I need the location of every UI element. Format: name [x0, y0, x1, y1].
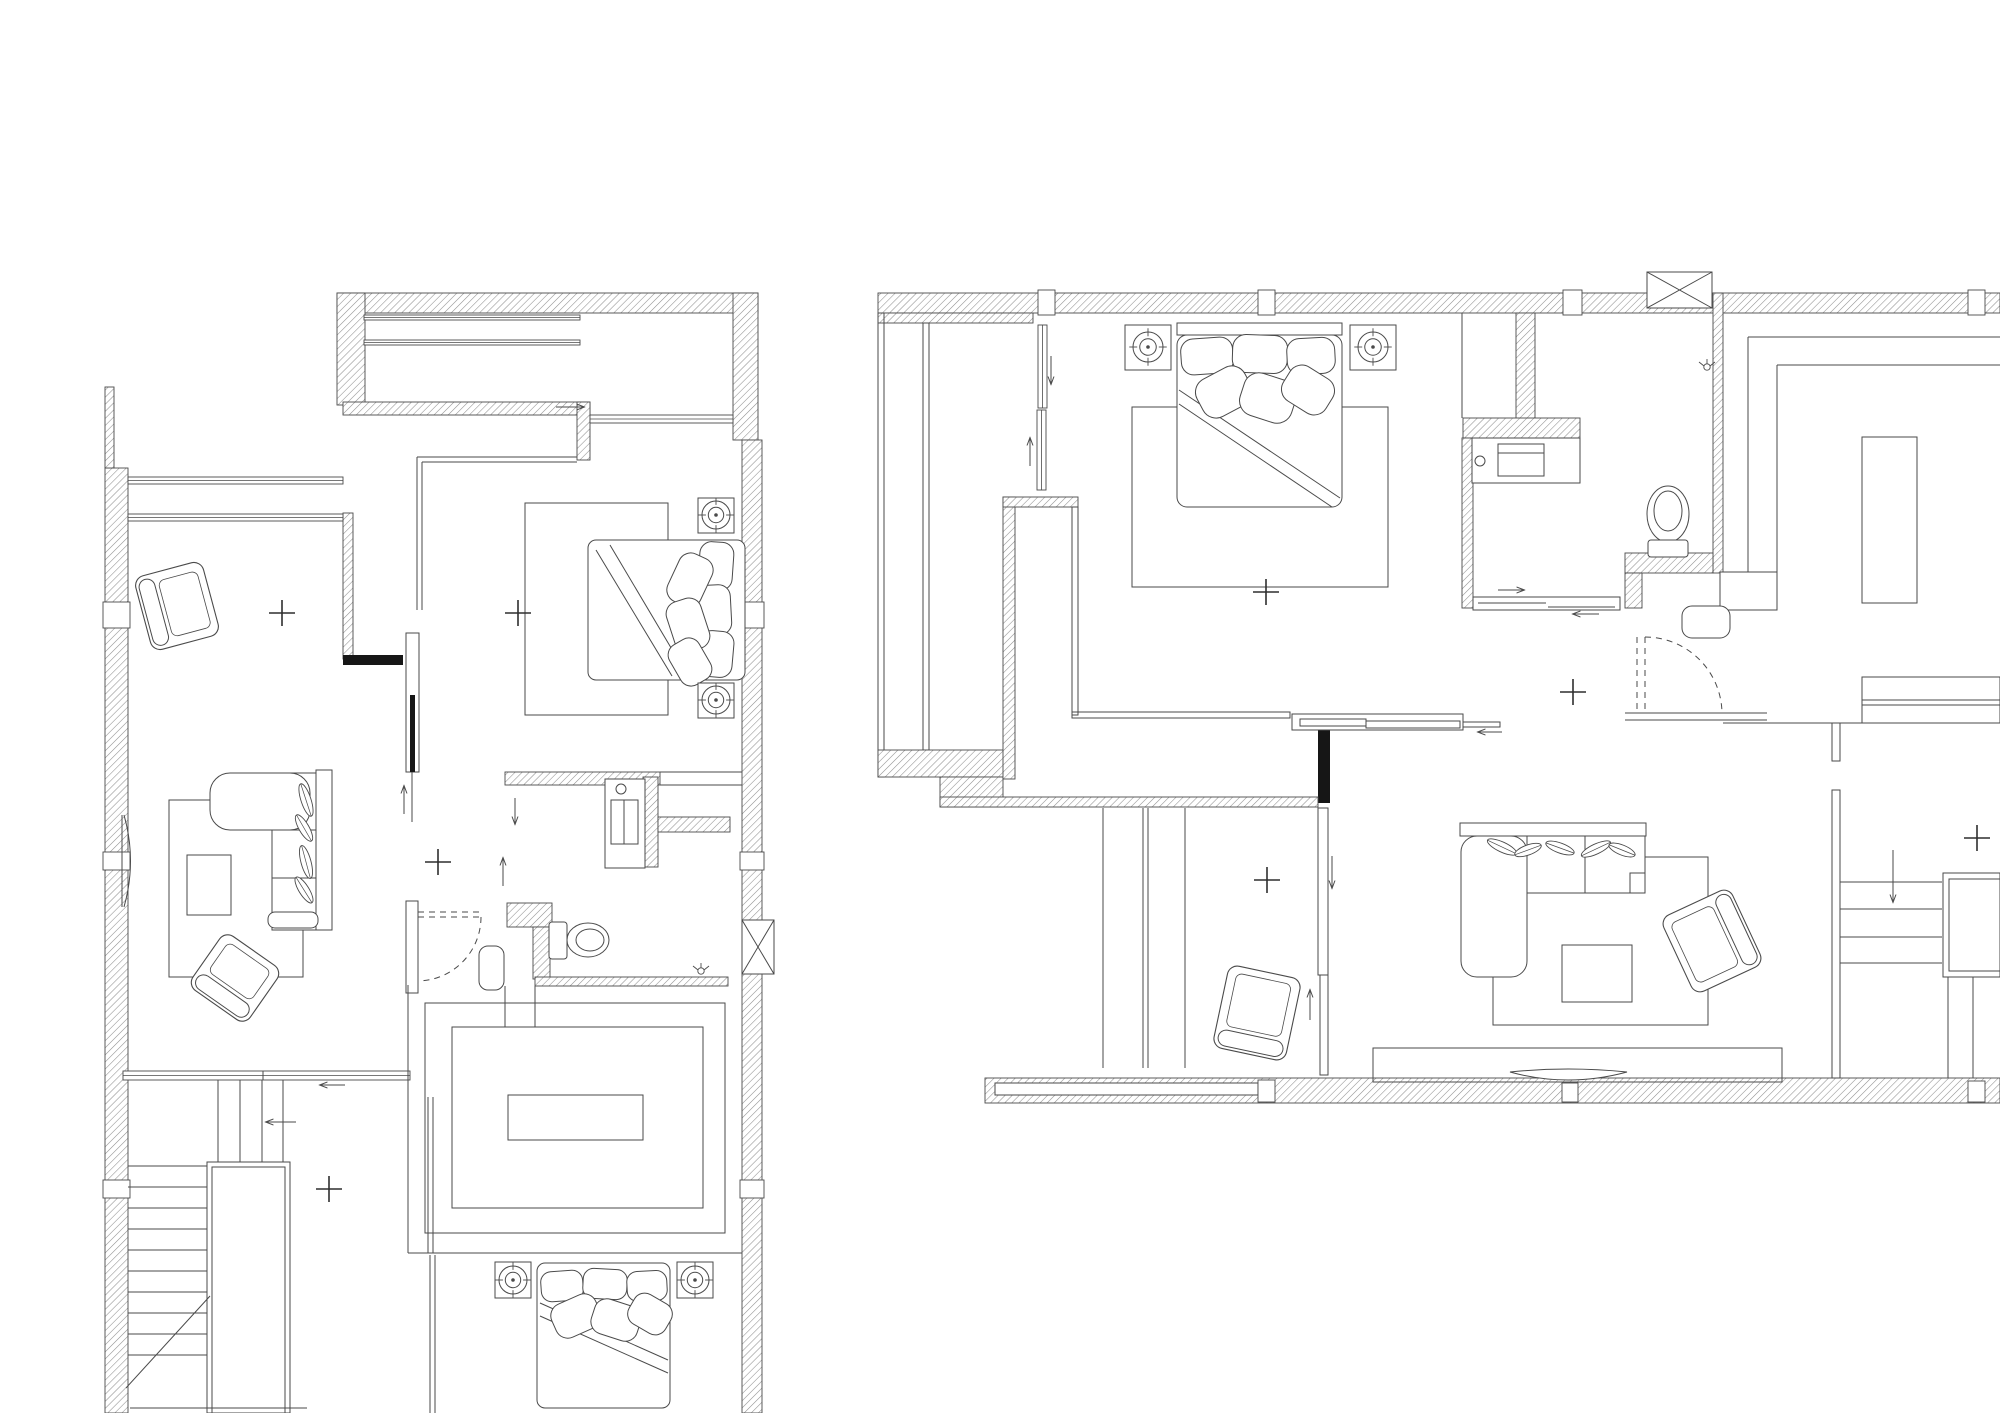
sliding-door-panel	[1300, 719, 1366, 726]
toilet	[1647, 486, 1689, 557]
sofa-chaise	[210, 773, 310, 830]
lamp-icon-dot	[714, 513, 718, 517]
sliding-door-track	[1038, 325, 1047, 408]
bench	[1682, 606, 1730, 638]
sofa-body	[1527, 835, 1645, 893]
nightstand	[698, 683, 734, 719]
wall	[343, 402, 590, 415]
bath-wall	[658, 817, 730, 832]
wall-column-gap	[1562, 1083, 1578, 1102]
toilet	[549, 922, 609, 959]
window-band	[128, 514, 343, 521]
wall-plain	[1720, 572, 1777, 610]
sofa-chaise	[1461, 836, 1527, 977]
shaft-box	[1647, 272, 1712, 308]
floorplan-svg	[0, 0, 2000, 1413]
wall-solid	[1318, 730, 1330, 803]
door-leaf	[406, 901, 418, 993]
shaft-box	[742, 920, 774, 974]
wall-window-gap	[740, 852, 764, 870]
sofa-back	[316, 770, 332, 930]
bed	[1177, 323, 1342, 507]
lamp-icon-dot	[511, 1278, 515, 1282]
wall-column-gap	[1258, 1080, 1275, 1102]
door-jamb	[1832, 723, 1840, 761]
bath-wall	[1462, 438, 1473, 608]
bath-wall	[507, 903, 552, 927]
coffee-table	[1562, 945, 1632, 1002]
bath-wall	[1625, 573, 1642, 608]
sliding-panel-leaf	[410, 695, 415, 772]
table	[508, 1095, 643, 1140]
window-band	[995, 1083, 1258, 1095]
toilet-tank	[549, 922, 567, 959]
sliding-door-panel	[1366, 721, 1460, 728]
counter-line	[364, 315, 580, 320]
wall	[577, 402, 590, 460]
nightstand	[698, 498, 734, 534]
coffee-table	[187, 855, 231, 915]
sofa-armrest	[268, 912, 318, 928]
nightstand	[495, 1262, 531, 1298]
wall-column-gap	[1968, 1081, 1985, 1102]
wall-window-gap	[103, 1180, 130, 1198]
bath-wall	[533, 927, 550, 979]
wall-column-gap	[1968, 290, 1985, 315]
wall	[1003, 497, 1015, 779]
toilet-tank	[1648, 540, 1688, 557]
vanity-sink	[1472, 438, 1580, 483]
closet-island	[1862, 437, 1917, 603]
bed	[588, 540, 745, 690]
wall-window-gap	[103, 602, 130, 628]
nightstand	[1350, 325, 1396, 370]
wall-solid	[343, 655, 403, 665]
wall-column-gap	[1038, 290, 1055, 315]
wall-window-gap	[103, 852, 130, 870]
lamp-icon-dot	[1371, 345, 1375, 349]
wall	[1003, 497, 1078, 507]
lamp-icon-dot	[714, 698, 718, 702]
sliding-window	[590, 415, 733, 423]
bath-wall	[1713, 293, 1723, 573]
sliding-door-track	[1320, 975, 1328, 1075]
column-wall	[337, 293, 365, 405]
sofa-armrest	[1630, 873, 1645, 893]
column-wall	[733, 293, 758, 440]
toilet-bowl	[1647, 486, 1689, 542]
nightstand	[677, 1262, 713, 1298]
wall	[878, 750, 1005, 777]
bath-wall	[1463, 418, 1580, 438]
sliding-door-track	[1318, 808, 1328, 975]
top-wall-thick	[878, 313, 1033, 323]
headboard	[1177, 323, 1342, 335]
bed	[537, 1263, 677, 1408]
nightstand	[1125, 325, 1171, 370]
cabinet	[479, 946, 504, 990]
wall	[940, 797, 1318, 807]
sliding-door-track	[1037, 410, 1046, 490]
top-wall	[337, 293, 758, 313]
wall-column-gap	[1563, 290, 1582, 315]
sofa-back	[1460, 823, 1646, 836]
window-band	[128, 477, 343, 484]
vanity-sink	[605, 779, 645, 868]
sheet-background	[0, 0, 2000, 1413]
wall-column-gap	[1258, 290, 1275, 315]
lamp-icon-dot	[693, 1278, 697, 1282]
bath-wall	[1516, 313, 1535, 420]
toilet-bowl	[567, 923, 609, 957]
wall-window-gap	[740, 1180, 764, 1198]
drawing-sheet	[0, 0, 2000, 1413]
lamp-icon-dot	[1146, 345, 1150, 349]
bath-wall	[535, 977, 728, 986]
counter-line	[364, 340, 580, 345]
west-wall-upper	[105, 387, 114, 468]
wall	[343, 513, 353, 659]
sliding-track	[123, 1071, 410, 1080]
